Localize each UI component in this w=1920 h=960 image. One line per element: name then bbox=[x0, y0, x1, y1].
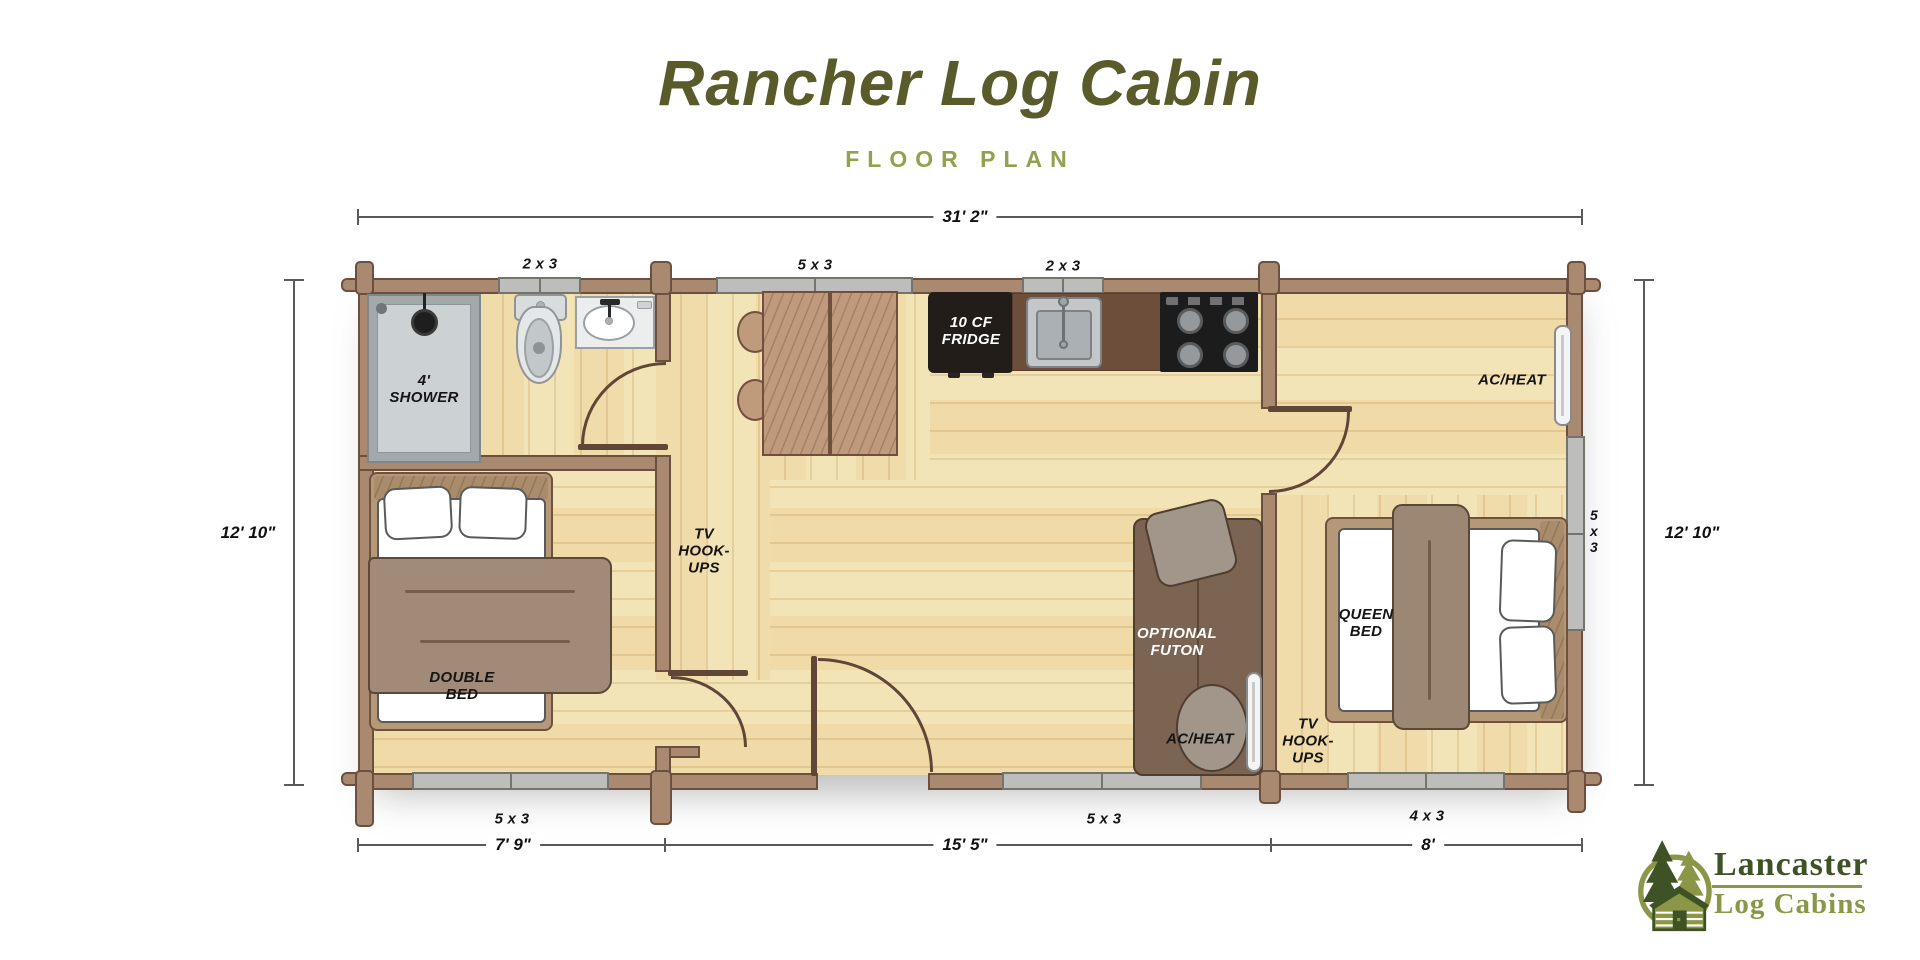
toilet-drain bbox=[533, 342, 545, 354]
dim-tick bbox=[1581, 209, 1583, 225]
window-label-right: 5x3 bbox=[1590, 507, 1598, 555]
wall-bedroom2 bbox=[1261, 493, 1277, 790]
pillow bbox=[383, 485, 454, 540]
pillow bbox=[1499, 625, 1558, 705]
window-label-bedroom2: 4 x 3 bbox=[1410, 808, 1445, 825]
window-bedroom2-4x3 bbox=[1347, 772, 1505, 790]
dim-label-bottom-1: 7' 9" bbox=[486, 835, 540, 855]
window-label-bath: 2 x 3 bbox=[523, 256, 558, 273]
window-label-living: 5 x 3 bbox=[1087, 811, 1122, 828]
log-post-top-right bbox=[1567, 261, 1586, 295]
queen-bed-blanket-fold bbox=[1428, 540, 1431, 700]
dim-line-left bbox=[293, 280, 295, 786]
kitchen-faucet-icon bbox=[1058, 296, 1069, 307]
log-post-bottom-right bbox=[1567, 770, 1586, 813]
wall-bathroom-upper bbox=[655, 291, 671, 362]
dim-line-right bbox=[1643, 280, 1645, 786]
window-kitchen-2x3 bbox=[1022, 277, 1104, 294]
dim-cap bbox=[284, 784, 304, 786]
dining-table-left-leaf bbox=[762, 291, 830, 456]
company-logo: Lancaster Log Cabins bbox=[1630, 838, 1890, 938]
double-bed-blanket-fold bbox=[405, 590, 575, 593]
tv-hookups-right-label: TVHOOK-UPS bbox=[1282, 716, 1334, 767]
page-title: Rancher Log Cabin bbox=[0, 46, 1920, 120]
dim-tick bbox=[1581, 838, 1583, 852]
window-bedroom1-5x3 bbox=[412, 772, 609, 790]
wall-bedroom1 bbox=[655, 455, 671, 672]
window-label-kitchen: 2 x 3 bbox=[1046, 258, 1081, 275]
ac-heat-unit-bedroom-vent bbox=[1561, 335, 1564, 416]
log-post-top-left bbox=[355, 261, 374, 295]
dim-label-left-height: 12' 10" bbox=[221, 523, 276, 543]
log-post-top-mid2 bbox=[1258, 261, 1280, 295]
vanity-soap bbox=[637, 301, 652, 309]
ac-heat-bedroom-label: AC/HEAT bbox=[1478, 372, 1546, 389]
bedroom1-door-panel bbox=[668, 670, 748, 676]
double-bed-label: DOUBLEBED bbox=[429, 669, 494, 703]
stove-control-strip bbox=[1166, 297, 1252, 305]
log-post-bottom-mid1 bbox=[650, 770, 672, 825]
dim-tick bbox=[1270, 838, 1272, 852]
shower-head-icon bbox=[411, 309, 438, 336]
dim-cap bbox=[1634, 784, 1654, 786]
fridge-label: 10 CFFRIDGE bbox=[942, 314, 1000, 348]
log-post-top-mid1 bbox=[650, 261, 672, 295]
logo-tagline: Log Cabins bbox=[1714, 888, 1867, 921]
double-bed-blanket-fold bbox=[420, 640, 570, 643]
wall-bedroom1-stub-nub bbox=[669, 746, 700, 758]
shower-label: 4'SHOWER bbox=[389, 372, 458, 406]
stove-burner bbox=[1177, 342, 1203, 368]
queen-bed-label: QUEENBED bbox=[1339, 606, 1394, 640]
kitchen-faucet-end bbox=[1059, 340, 1068, 349]
dining-table-right-leaf bbox=[830, 291, 898, 456]
window-label-bedroom1: 5 x 3 bbox=[495, 811, 530, 828]
dim-label-bottom-2: 15' 5" bbox=[933, 835, 996, 855]
cabin-emblem-icon bbox=[1630, 838, 1722, 934]
stove-burner bbox=[1223, 342, 1249, 368]
window-label-dining: 5 x 3 bbox=[798, 257, 833, 274]
entry-door-panel bbox=[811, 656, 817, 776]
ac-heat-unit-living-vent bbox=[1252, 682, 1255, 762]
dim-label-width: 31' 2" bbox=[933, 207, 996, 227]
log-post-bottom-mid2 bbox=[1259, 770, 1281, 804]
tv-hookups-left-label: TVHOOK-UPS bbox=[678, 526, 730, 577]
dim-tick bbox=[664, 838, 666, 852]
wall-kitchen-upper bbox=[1261, 291, 1277, 409]
hall-floor-planks bbox=[656, 480, 770, 680]
futon-cushion-bottom bbox=[1176, 684, 1248, 772]
window-bath-2x3 bbox=[498, 277, 581, 294]
futon-label: OPTIONALFUTON bbox=[1137, 625, 1217, 659]
dim-cap bbox=[284, 279, 304, 281]
ac-heat-living-label: AC/HEAT bbox=[1166, 731, 1234, 748]
logo-wordmark: Lancaster bbox=[1714, 846, 1868, 884]
page-subtitle: FLOOR PLAN bbox=[0, 146, 1920, 173]
pillow bbox=[1499, 539, 1558, 623]
queen-bed-blanket bbox=[1392, 504, 1470, 730]
dim-tick bbox=[357, 209, 359, 225]
vanity-drain bbox=[605, 317, 613, 325]
window-right-5x3 bbox=[1566, 436, 1585, 631]
pillow bbox=[458, 486, 528, 540]
dim-label-bottom-3: 8' bbox=[1412, 835, 1444, 855]
floor-plan-page: Rancher Log Cabin FLOOR PLAN bbox=[0, 0, 1920, 960]
shower-knob bbox=[376, 303, 387, 314]
vanity-faucet-stem bbox=[608, 304, 611, 318]
stove-burner bbox=[1223, 308, 1249, 334]
dim-label-right-height: 12' 10" bbox=[1665, 523, 1720, 543]
stove-burner bbox=[1177, 308, 1203, 334]
log-post-bottom-left bbox=[355, 770, 374, 827]
dim-tick bbox=[357, 838, 359, 852]
dim-cap bbox=[1634, 279, 1654, 281]
